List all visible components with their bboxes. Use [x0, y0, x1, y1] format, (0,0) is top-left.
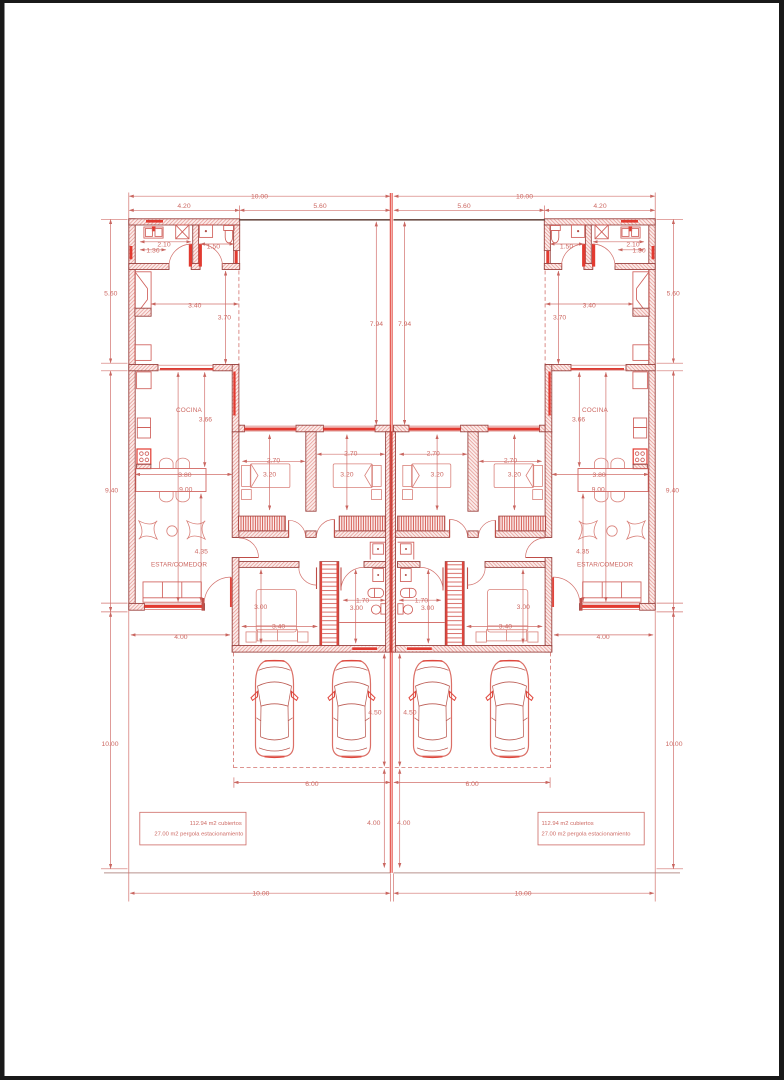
- svg-text:3.70: 3.70: [553, 315, 566, 322]
- svg-text:3.80: 3.80: [178, 472, 191, 479]
- svg-text:3.00: 3.00: [421, 605, 434, 612]
- svg-text:4.00: 4.00: [596, 634, 609, 641]
- svg-text:1.50: 1.50: [560, 243, 573, 250]
- svg-text:2.70: 2.70: [267, 458, 280, 465]
- svg-text:3.20: 3.20: [263, 472, 276, 479]
- svg-text:3.66: 3.66: [199, 417, 212, 424]
- svg-text:10.00: 10.00: [252, 891, 269, 898]
- svg-text:2.70: 2.70: [504, 458, 517, 465]
- svg-text:3.00: 3.00: [517, 604, 530, 611]
- svg-text:3.20: 3.20: [340, 472, 353, 479]
- svg-text:5.60: 5.60: [457, 203, 470, 210]
- svg-text:112.94 m2 cubiertos: 112.94 m2 cubiertos: [542, 821, 594, 827]
- svg-text:1.50: 1.50: [632, 248, 645, 255]
- svg-text:3.00: 3.00: [350, 605, 363, 612]
- svg-text:4.35: 4.35: [195, 549, 208, 556]
- svg-text:7.94: 7.94: [370, 321, 383, 328]
- svg-text:112.94 m2 cubiertos: 112.94 m2 cubiertos: [190, 821, 242, 827]
- svg-text:10.00: 10.00: [516, 194, 533, 201]
- svg-text:5.60: 5.60: [313, 203, 326, 210]
- svg-text:1.70: 1.70: [415, 597, 428, 604]
- svg-text:4.00: 4.00: [174, 634, 187, 641]
- svg-text:1.50: 1.50: [207, 243, 220, 250]
- svg-text:3.80: 3.80: [592, 472, 605, 479]
- svg-text:ESTAR/COMEDOR: ESTAR/COMEDOR: [577, 562, 633, 569]
- svg-text:9.00: 9.00: [179, 487, 192, 494]
- svg-text:6.00: 6.00: [305, 781, 318, 788]
- svg-text:27.00 m2 pergola estacionamien: 27.00 m2 pergola estacionamiento: [154, 832, 243, 838]
- svg-text:3.70: 3.70: [218, 315, 231, 322]
- svg-text:9.40: 9.40: [105, 488, 118, 495]
- svg-text:5.60: 5.60: [667, 291, 680, 298]
- svg-text:4.20: 4.20: [593, 203, 606, 210]
- svg-text:3.66: 3.66: [572, 417, 585, 424]
- svg-text:3.40: 3.40: [188, 303, 201, 310]
- svg-text:10.00: 10.00: [101, 741, 118, 748]
- svg-text:4.20: 4.20: [177, 203, 190, 210]
- svg-text:ESTAR/COMEDOR: ESTAR/COMEDOR: [151, 562, 207, 569]
- svg-text:4.00: 4.00: [367, 820, 380, 827]
- svg-text:4.50: 4.50: [368, 710, 381, 717]
- svg-text:1.36: 1.36: [146, 248, 159, 255]
- svg-text:COCINA: COCINA: [582, 407, 609, 414]
- svg-text:6.00: 6.00: [465, 781, 478, 788]
- svg-text:10.00: 10.00: [251, 194, 268, 201]
- svg-text:3.00: 3.00: [254, 604, 267, 611]
- svg-text:3.20: 3.20: [430, 472, 443, 479]
- svg-text:4.50: 4.50: [403, 710, 416, 717]
- svg-text:27.00 m2 pergola estacionamien: 27.00 m2 pergola estacionamiento: [542, 832, 631, 838]
- svg-text:10.00: 10.00: [515, 891, 532, 898]
- svg-text:3.40: 3.40: [583, 303, 596, 310]
- svg-text:9.40: 9.40: [666, 488, 679, 495]
- svg-text:5.60: 5.60: [104, 291, 117, 298]
- svg-text:1.70: 1.70: [356, 597, 369, 604]
- svg-text:3.40: 3.40: [272, 624, 285, 631]
- svg-text:2.70: 2.70: [344, 451, 357, 458]
- svg-text:9.00: 9.00: [592, 487, 605, 494]
- svg-text:3.40: 3.40: [499, 624, 512, 631]
- svg-text:4.00: 4.00: [397, 820, 410, 827]
- svg-text:COCINA: COCINA: [176, 407, 203, 414]
- svg-text:3.20: 3.20: [508, 472, 521, 479]
- svg-text:2.70: 2.70: [427, 451, 440, 458]
- svg-text:10.00: 10.00: [665, 741, 682, 748]
- svg-text:4.35: 4.35: [576, 549, 589, 556]
- svg-text:7.94: 7.94: [398, 321, 411, 328]
